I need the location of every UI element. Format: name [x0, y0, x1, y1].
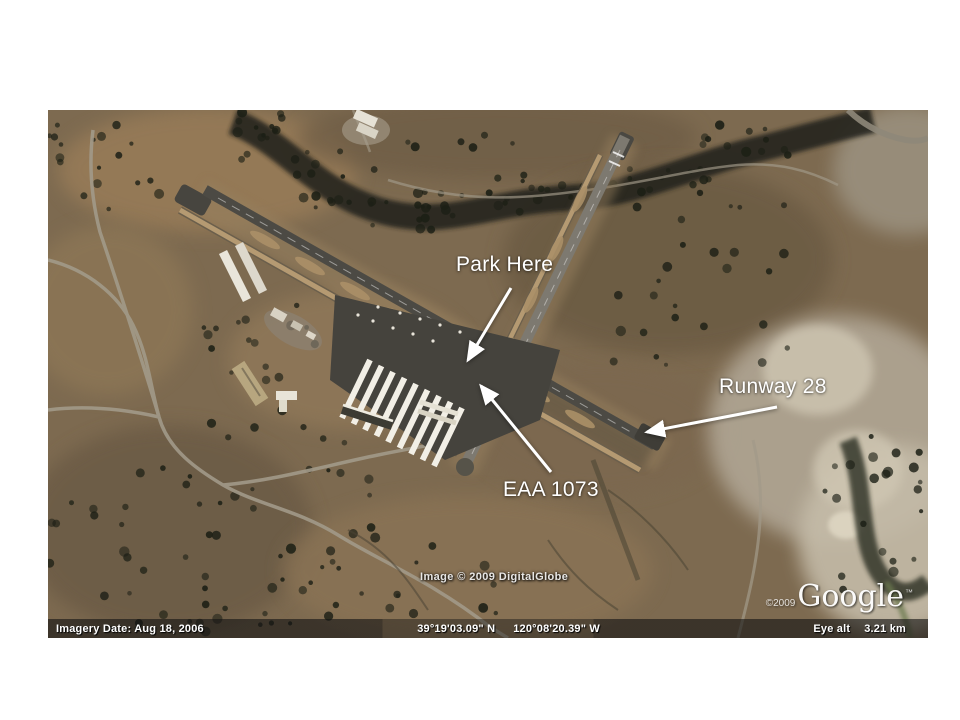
- imagery-date: Imagery Date: Aug 18, 2006: [56, 623, 204, 635]
- coordinates: 39°19'03.09" N 120°08'20.39" W: [204, 623, 814, 635]
- longitude: 120°08'20.39" W: [513, 623, 600, 635]
- status-bar: Imagery Date: Aug 18, 2006 39°19'03.09" …: [48, 619, 928, 638]
- eye-alt-label: Eye alt: [813, 623, 850, 635]
- slide: { "annotations": { "park_here": "Park He…: [0, 0, 960, 720]
- google-logo: ©2009 Google ™: [766, 584, 913, 610]
- eaa-label: EAA 1073: [503, 479, 599, 501]
- latitude: 39°19'03.09" N: [417, 623, 495, 635]
- google-trademark: ™: [905, 588, 913, 597]
- eye-altitude: Eye alt 3.21 km: [813, 623, 906, 635]
- terrain-graphic: [48, 110, 928, 638]
- satellite-map: Park Here Runway 28 EAA 1073 Image © 200…: [48, 110, 928, 638]
- park-here-label: Park Here: [456, 254, 553, 276]
- eye-alt-value: 3.21 km: [864, 623, 906, 635]
- google-brand: Google: [797, 584, 904, 610]
- google-copyright: ©2009: [766, 598, 796, 609]
- runway-28-label: Runway 28: [719, 376, 827, 398]
- digitalglobe-watermark: Image © 2009 DigitalGlobe: [420, 571, 568, 583]
